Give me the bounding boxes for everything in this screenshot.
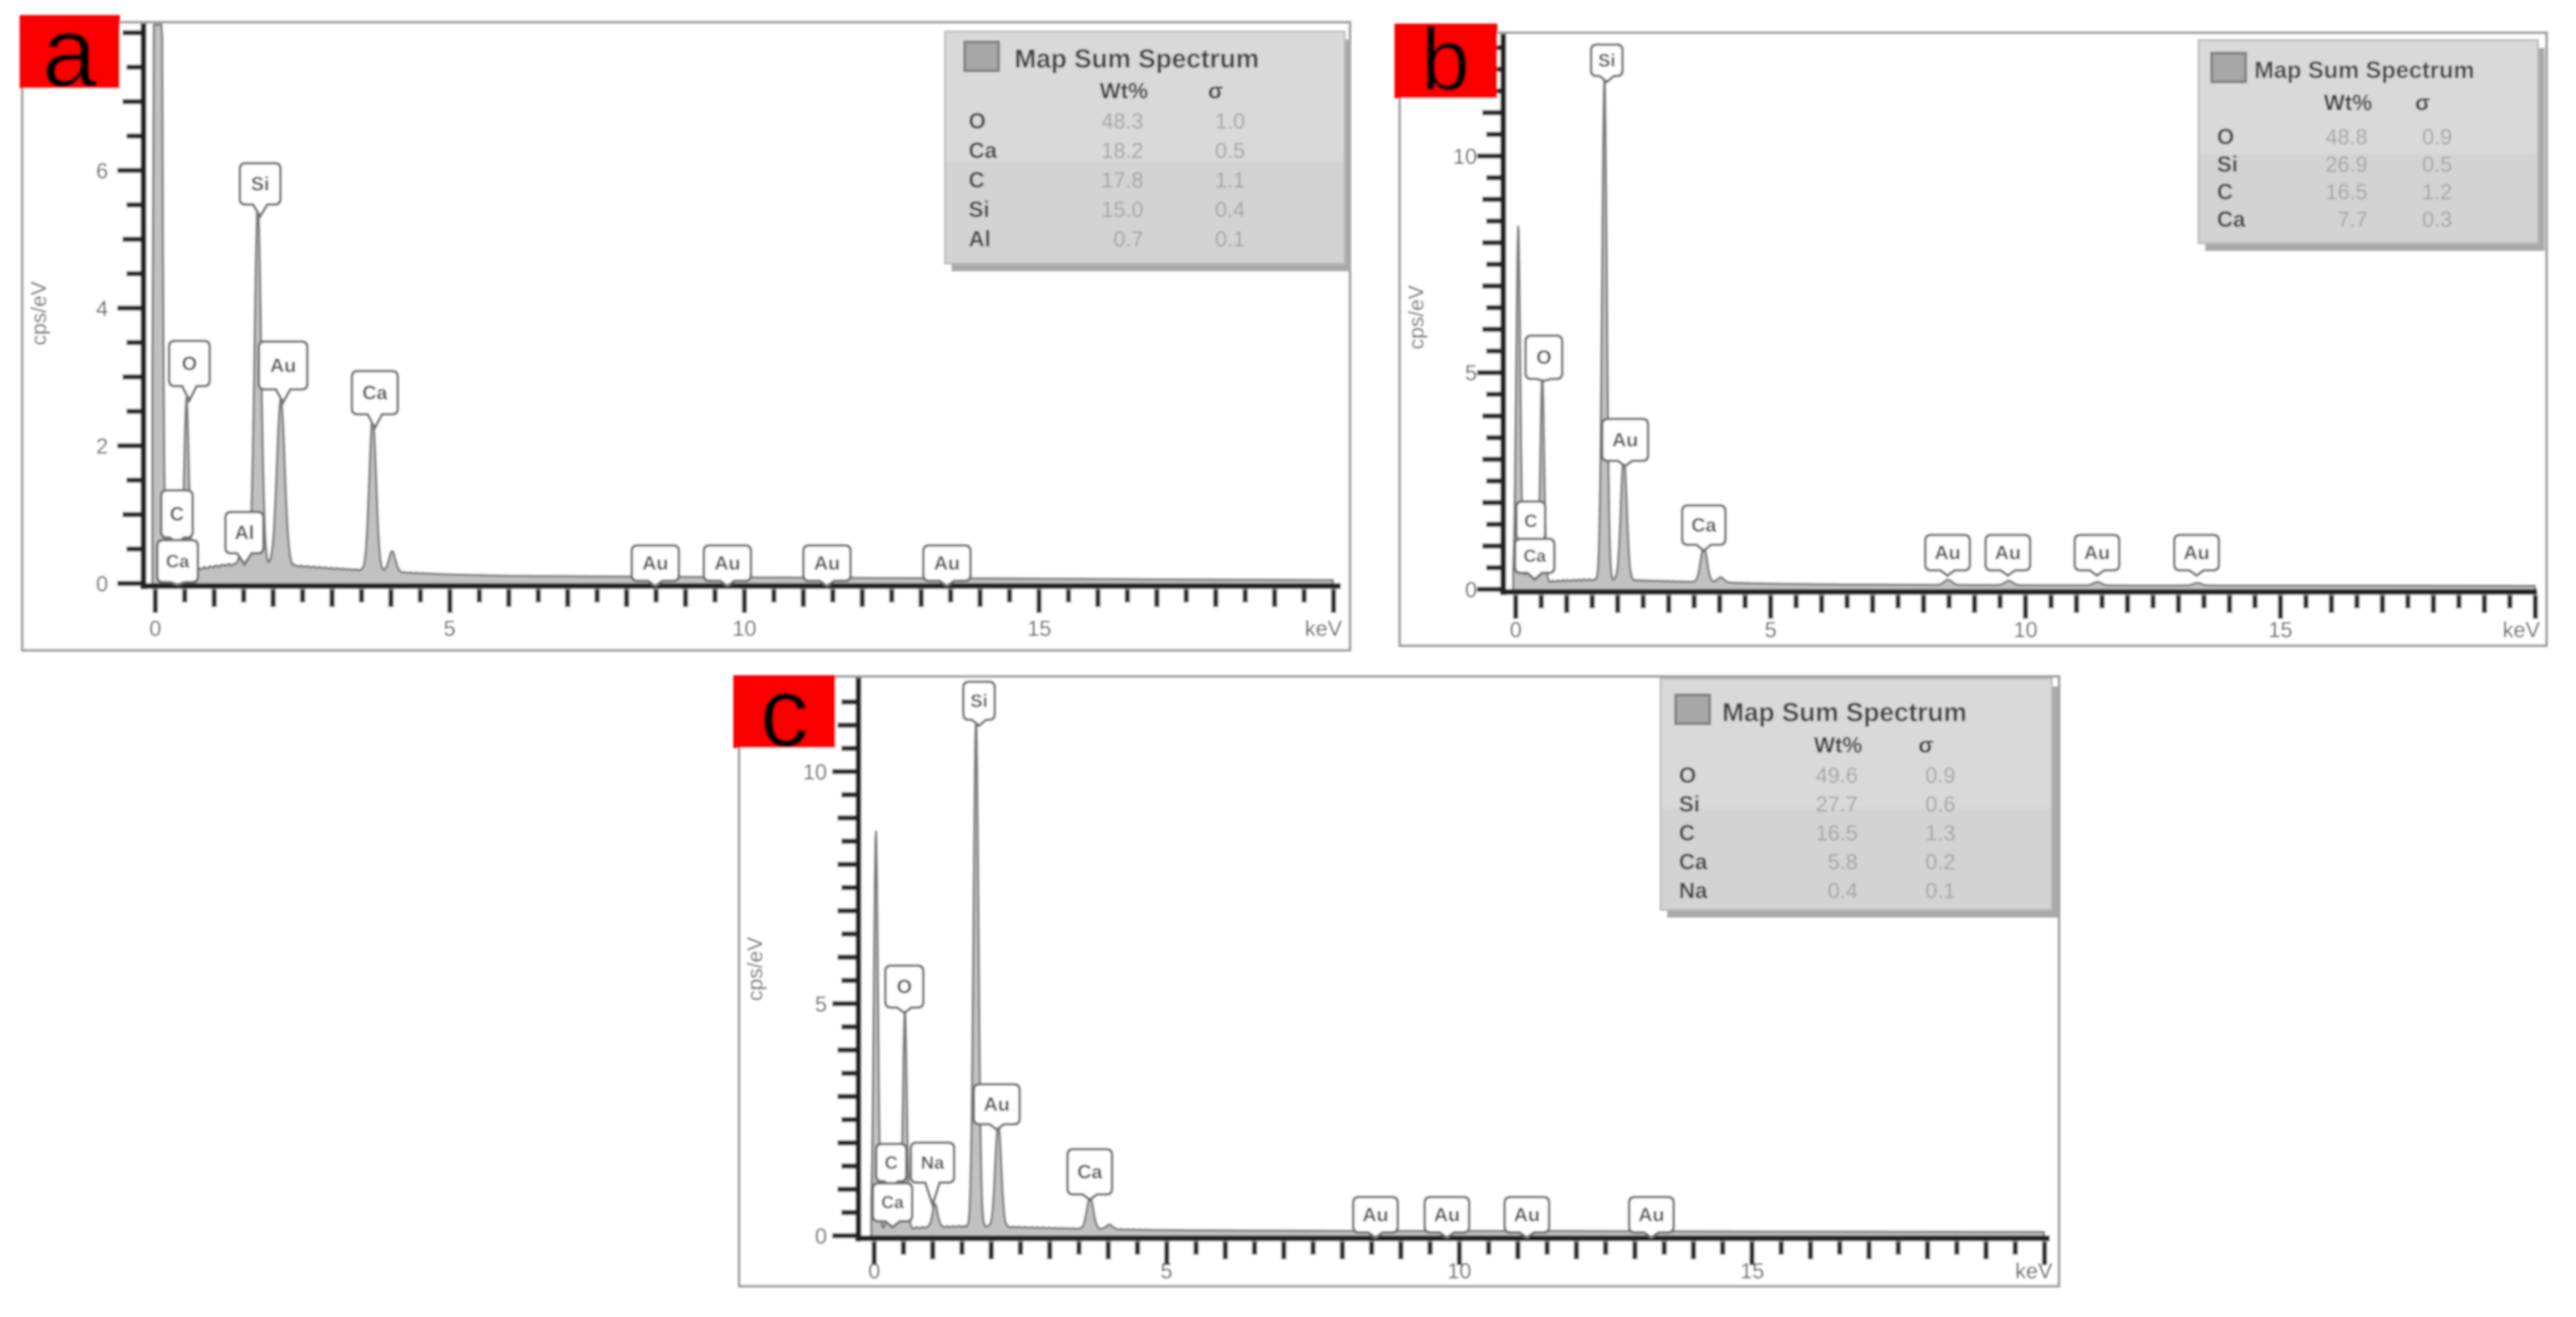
svg-text:48.3: 48.3 <box>1102 109 1144 133</box>
svg-text:Au: Au <box>1995 542 2021 564</box>
svg-text:Ca: Ca <box>2217 207 2246 232</box>
svg-text:Ca: Ca <box>881 1192 904 1212</box>
svg-text:a: a <box>42 0 97 107</box>
svg-text:Na: Na <box>921 1152 944 1173</box>
svg-text:Wt%: Wt% <box>1100 79 1148 104</box>
svg-text:C: C <box>969 168 985 193</box>
svg-text:O: O <box>2217 125 2234 149</box>
svg-text:15: 15 <box>1740 1259 1765 1283</box>
svg-text:15: 15 <box>1028 616 1052 640</box>
svg-text:Au: Au <box>1362 1204 1389 1226</box>
svg-text:6: 6 <box>96 159 108 183</box>
svg-text:0.7: 0.7 <box>1113 227 1144 251</box>
svg-text:b: b <box>1421 11 1471 109</box>
svg-text:Ca: Ca <box>1524 546 1547 566</box>
svg-text:1.0: 1.0 <box>1215 109 1245 133</box>
svg-text:keV: keV <box>2503 618 2540 642</box>
svg-text:C: C <box>2217 180 2233 205</box>
svg-text:0: 0 <box>149 616 161 640</box>
svg-text:Au: Au <box>714 553 740 574</box>
svg-text:keV: keV <box>1305 616 1342 640</box>
svg-text:O: O <box>896 976 912 998</box>
svg-text:16.5: 16.5 <box>2326 180 2368 204</box>
svg-text:5: 5 <box>1765 618 1777 642</box>
svg-text:4: 4 <box>96 296 108 321</box>
svg-text:Au: Au <box>1434 1204 1460 1226</box>
svg-text:5: 5 <box>444 616 455 640</box>
svg-text:1.1: 1.1 <box>1215 168 1245 192</box>
svg-text:O: O <box>1536 347 1551 368</box>
svg-text:0.5: 0.5 <box>2422 152 2452 176</box>
svg-text:15: 15 <box>2269 618 2293 642</box>
svg-text:Au: Au <box>814 553 840 574</box>
svg-text:0: 0 <box>1465 578 1477 602</box>
svg-text:keV: keV <box>2015 1259 2052 1283</box>
svg-text:O: O <box>182 353 197 375</box>
svg-text:0.9: 0.9 <box>1925 763 1955 787</box>
svg-text:Au: Au <box>642 553 668 574</box>
svg-text:16.5: 16.5 <box>1816 821 1858 845</box>
svg-text:σ: σ <box>2415 90 2430 115</box>
svg-text:5: 5 <box>815 992 827 1016</box>
svg-text:5: 5 <box>1465 361 1477 385</box>
svg-text:c: c <box>760 657 809 767</box>
svg-text:Ca: Ca <box>1679 850 1708 875</box>
svg-text:Wt%: Wt% <box>2324 90 2372 115</box>
svg-text:7.7: 7.7 <box>2337 207 2368 231</box>
svg-text:49.6: 49.6 <box>1816 763 1858 787</box>
svg-text:2: 2 <box>96 434 108 458</box>
svg-text:0: 0 <box>1510 618 1522 642</box>
svg-text:5.8: 5.8 <box>1828 850 1858 874</box>
svg-text:Ca: Ca <box>362 382 388 404</box>
svg-text:1.2: 1.2 <box>2422 180 2452 204</box>
svg-text:O: O <box>1679 763 1696 788</box>
svg-text:0.5: 0.5 <box>1215 138 1245 163</box>
svg-text:17.8: 17.8 <box>1102 168 1144 192</box>
svg-text:Si: Si <box>971 691 988 711</box>
svg-text:Al: Al <box>969 227 991 252</box>
svg-text:10: 10 <box>2014 618 2038 642</box>
svg-text:15.0: 15.0 <box>1102 197 1144 222</box>
svg-text:5: 5 <box>1161 1259 1172 1283</box>
svg-text:0.3: 0.3 <box>2422 207 2452 231</box>
svg-text:Au: Au <box>2183 542 2210 564</box>
svg-text:Map Sum Spectrum: Map Sum Spectrum <box>2254 56 2474 83</box>
svg-text:cps/eV: cps/eV <box>743 936 767 1000</box>
svg-text:Al: Al <box>235 522 254 544</box>
svg-text:cps/eV: cps/eV <box>27 281 50 345</box>
svg-text:Au: Au <box>934 553 960 574</box>
svg-text:18.2: 18.2 <box>1102 138 1144 163</box>
svg-text:C: C <box>1524 511 1537 531</box>
svg-text:48.8: 48.8 <box>2326 125 2368 149</box>
svg-text:Au: Au <box>2084 542 2110 564</box>
svg-text:Au: Au <box>1514 1204 1540 1226</box>
svg-text:10: 10 <box>1448 1259 1472 1283</box>
svg-text:cps/eV: cps/eV <box>1404 285 1428 349</box>
svg-text:Si: Si <box>251 174 269 195</box>
svg-text:Si: Si <box>2217 152 2238 177</box>
svg-text:σ: σ <box>1208 79 1223 104</box>
svg-text:27.7: 27.7 <box>1816 792 1858 816</box>
svg-text:0.2: 0.2 <box>1925 850 1955 874</box>
svg-text:0.4: 0.4 <box>1828 878 1858 903</box>
svg-text:Au: Au <box>1638 1204 1664 1226</box>
svg-text:1.3: 1.3 <box>1925 821 1955 845</box>
svg-text:0.1: 0.1 <box>1215 227 1245 251</box>
svg-text:Au: Au <box>270 355 296 377</box>
svg-text:0: 0 <box>815 1224 827 1248</box>
svg-text:0.4: 0.4 <box>1215 197 1245 222</box>
svg-text:Ca: Ca <box>1691 515 1717 536</box>
svg-text:0.1: 0.1 <box>1925 878 1955 903</box>
svg-text:10: 10 <box>733 616 757 640</box>
svg-text:Ca: Ca <box>969 138 998 163</box>
svg-text:C: C <box>170 503 184 525</box>
svg-text:Ca: Ca <box>1077 1162 1103 1183</box>
svg-text:10: 10 <box>1453 144 1477 168</box>
svg-text:O: O <box>969 109 986 134</box>
svg-text:C: C <box>885 1152 898 1173</box>
svg-text:0.9: 0.9 <box>2422 125 2452 149</box>
svg-text:Wt%: Wt% <box>1814 733 1862 758</box>
svg-text:Ca: Ca <box>166 551 189 572</box>
svg-text:0: 0 <box>868 1259 880 1283</box>
svg-text:0: 0 <box>96 572 108 596</box>
svg-text:C: C <box>1679 821 1695 846</box>
svg-text:0.6: 0.6 <box>1925 792 1955 816</box>
svg-text:26.9: 26.9 <box>2326 152 2368 176</box>
svg-text:σ: σ <box>1918 733 1933 758</box>
svg-text:Si: Si <box>1598 50 1615 71</box>
svg-text:Au: Au <box>984 1094 1010 1116</box>
svg-text:Au: Au <box>1934 542 1961 564</box>
svg-text:Au: Au <box>1612 429 1638 451</box>
svg-text:Map Sum Spectrum: Map Sum Spectrum <box>1722 698 1967 727</box>
svg-text:Na: Na <box>1679 878 1708 903</box>
svg-text:Si: Si <box>1679 792 1700 817</box>
svg-text:Si: Si <box>969 197 990 222</box>
svg-text:Map Sum Spectrum: Map Sum Spectrum <box>1014 45 1259 73</box>
